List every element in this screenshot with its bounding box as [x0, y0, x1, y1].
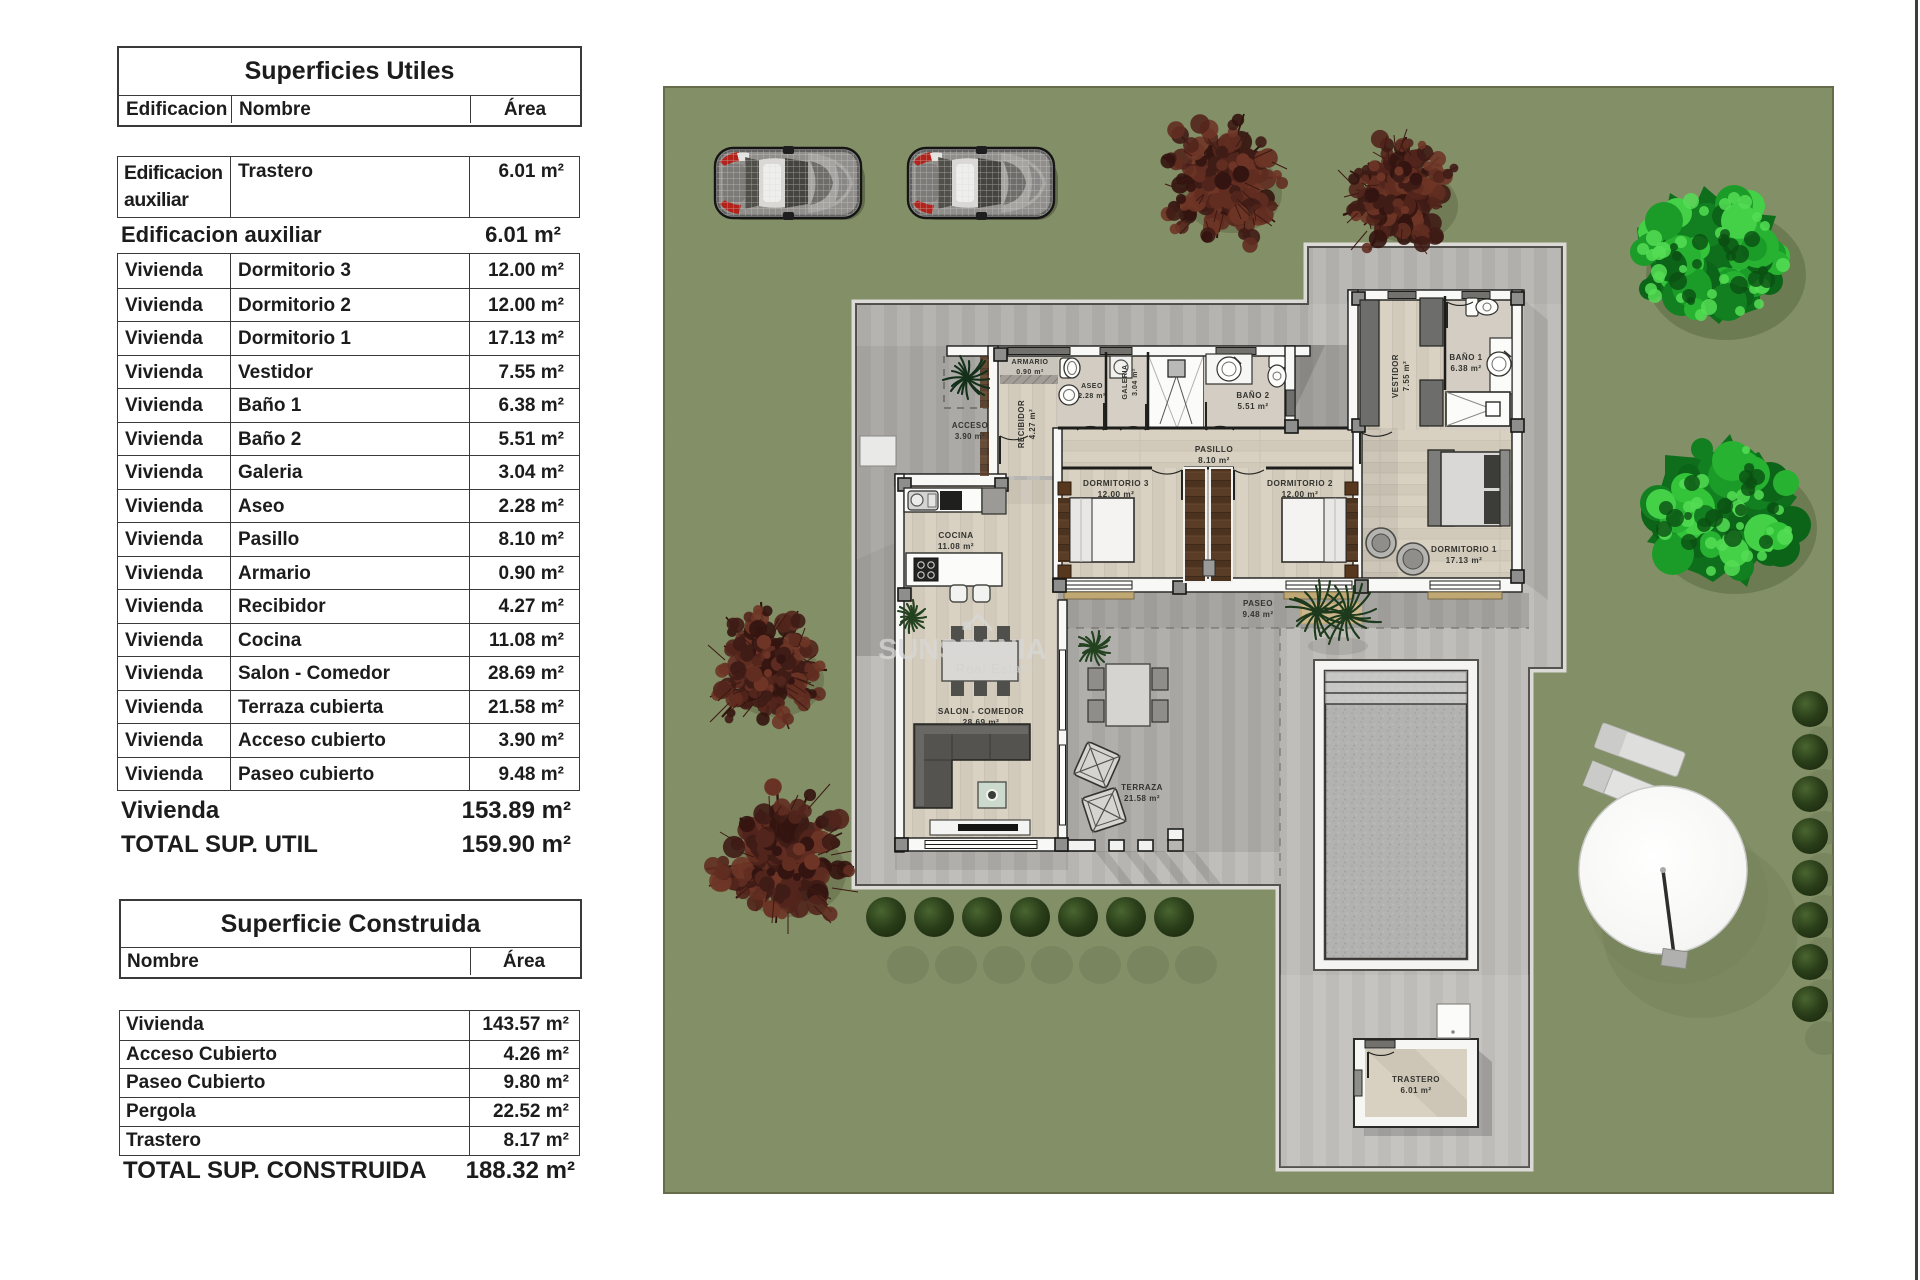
svg-text:Real Estate: Real Estate	[956, 661, 1034, 676]
svg-text:ACCESO3.90 m²: ACCESO3.90 m²	[952, 421, 988, 441]
